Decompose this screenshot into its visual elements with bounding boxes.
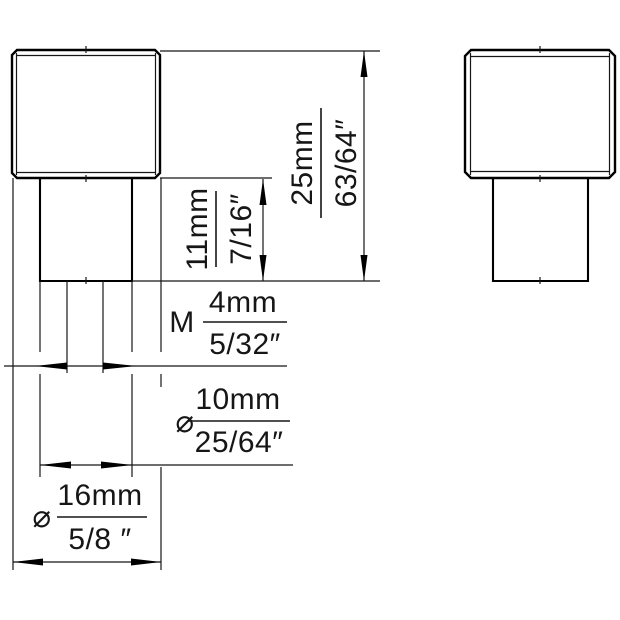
dimension-total-height: 25mm 63/64″ (286, 51, 368, 281)
arrowhead-left (13, 559, 43, 566)
dimension-value-inch: 5/32″ (209, 328, 281, 361)
arrowhead-right (101, 462, 132, 469)
head-outline (12, 50, 160, 178)
thread-prefix: M (169, 306, 195, 339)
arrowhead-down (361, 255, 368, 281)
stem-outline (493, 178, 588, 281)
dimension-stem-diameter: ⌀ 10mm 25/64″ (40, 383, 293, 469)
arrowhead-left (35, 363, 67, 370)
dimension-stem-height: 11mm 7/16″ (181, 179, 267, 281)
dimension-value-mm: 4mm (209, 286, 277, 319)
dimension-value-inch: 5/8 ″ (68, 523, 131, 556)
arrowhead-right (131, 559, 161, 566)
knob-front-view (465, 46, 615, 284)
dimension-value-mm: 16mm (57, 479, 142, 512)
knob-side-section-view (12, 46, 160, 284)
dimension-value-mm: 10mm (195, 383, 280, 416)
technical-drawing-canvas: 25mm 63/64″ 11mm 7/16″ M 4mm 5/32″ ⌀ 10m… (0, 0, 620, 620)
dimension-value-inch: 63/64″ (330, 119, 363, 208)
dimension-value-mm: 25mm (286, 120, 319, 205)
dimension-thread: M 4mm 5/32″ (4, 286, 287, 370)
head-outline (465, 50, 615, 178)
dimension-value-mm: 11mm (181, 187, 214, 270)
arrowhead-up (260, 179, 267, 205)
arrowhead-down (260, 255, 267, 281)
arrowhead-left (40, 462, 71, 469)
technical-drawing-page: 25mm 63/64″ 11mm 7/16″ M 4mm 5/32″ ⌀ 10m… (0, 0, 620, 620)
stem-outline (40, 178, 132, 281)
arrowhead-up (361, 51, 368, 77)
diameter-symbol: ⌀ (32, 499, 51, 534)
dimension-value-inch: 25/64″ (195, 426, 284, 459)
dimension-value-inch: 7/16″ (225, 193, 258, 265)
arrowhead-right (103, 363, 136, 370)
dimension-head-diameter: ⌀ 16mm 5/8 ″ (13, 479, 161, 566)
